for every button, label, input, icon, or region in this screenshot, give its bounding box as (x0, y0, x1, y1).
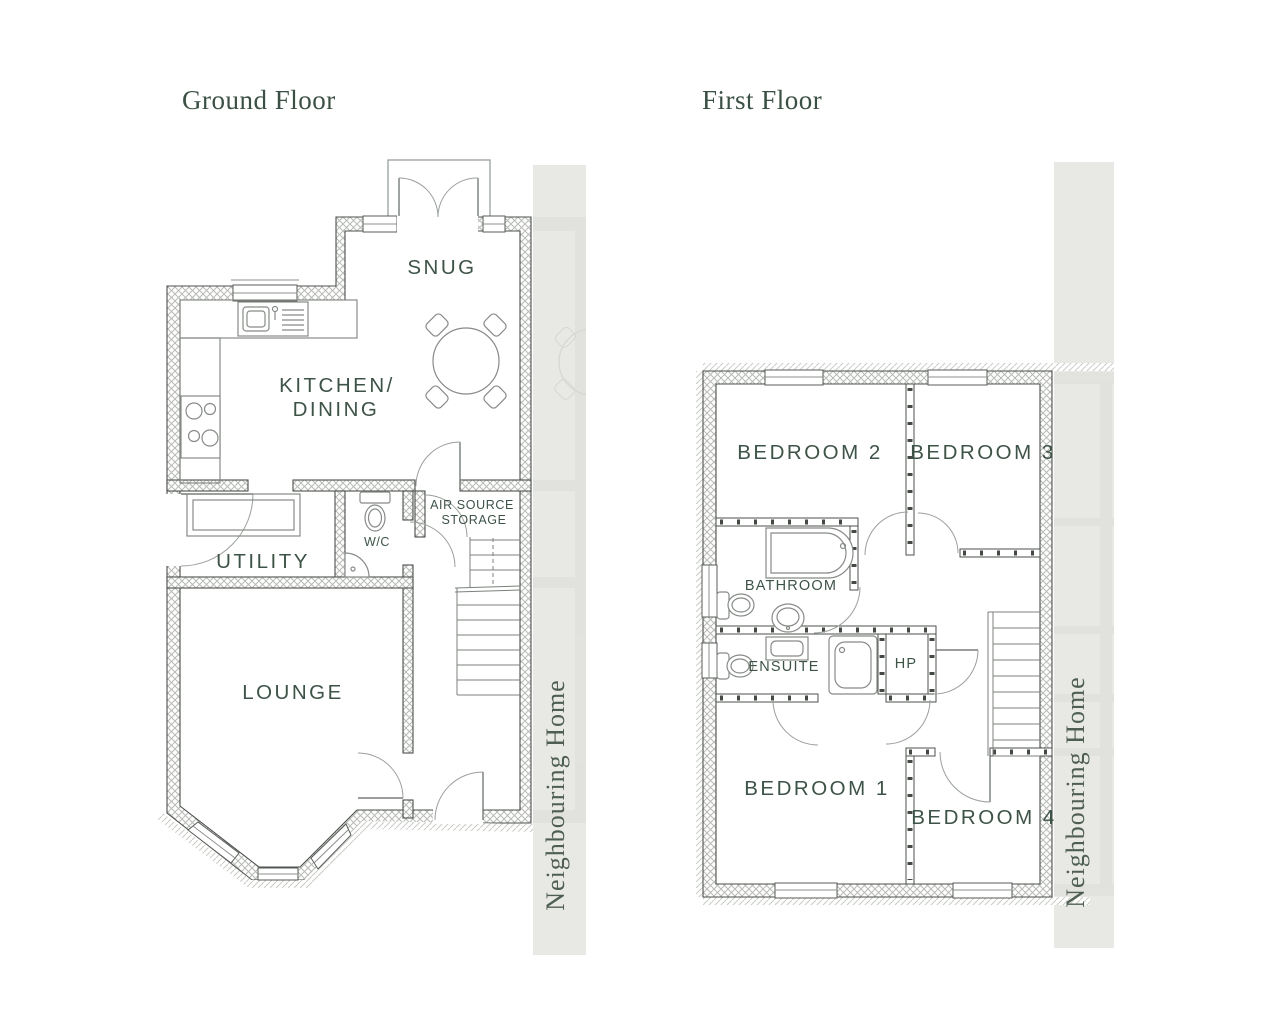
utility-worktop (187, 494, 300, 536)
kitchen-sink (238, 302, 308, 336)
room-label-hp: HP (895, 656, 918, 672)
bathroom-toilet (717, 592, 754, 619)
room-label-lounge: LOUNGE (242, 681, 344, 704)
room-label-kitchen-line2: DINING (293, 398, 380, 421)
room-label-wc: W/C (364, 535, 390, 549)
room-label-bedroom3: BEDROOM 3 (910, 441, 1056, 464)
room-label-snug: SNUG (407, 256, 476, 279)
ground-floor-plan: SNUG KITCHEN/ DINING UTILITY W/C AIR SOU… (160, 160, 625, 955)
wc-basin (345, 553, 369, 577)
room-label-airsource-line2: STORAGE (441, 513, 506, 527)
ground-internal-walls (167, 480, 531, 818)
room-label-bedroom1: BEDROOM 1 (744, 777, 890, 800)
wc-toilet (360, 492, 390, 531)
ground-exterior-walls (167, 217, 531, 880)
bathroom-basin (772, 604, 804, 632)
first-floor-title: First Floor (702, 85, 822, 116)
room-label-ensuite: ENSUITE (748, 659, 819, 675)
room-label-bedroom4: BEDROOM 4 (911, 806, 1057, 829)
first-bottom-eaves (703, 897, 1090, 905)
bathroom-bath (766, 528, 853, 578)
kitchen-hob (181, 396, 220, 458)
first-left-eaves (696, 371, 703, 897)
dining-table (424, 312, 507, 409)
room-label-bathroom: BATHROOM (745, 578, 837, 594)
room-label-kitchen-line1: KITCHEN/ (279, 374, 395, 397)
floorplan-page: Ground Floor First Floor (0, 0, 1280, 1024)
first-floor-plan: BEDROOM 2 BEDROOM 3 BATHROOM ENSUITE HP … (696, 162, 1114, 948)
ground-floor-title: Ground Floor (182, 85, 336, 116)
ground-neighbour-label: Neighbouring Home (541, 679, 570, 910)
room-label-utility: UTILITY (216, 550, 310, 573)
first-stairs (988, 612, 1040, 756)
ground-stairs (455, 537, 520, 695)
room-label-bedroom2: BEDROOM 2 (737, 441, 883, 464)
floorplan-canvas: SNUG KITCHEN/ DINING UTILITY W/C AIR SOU… (0, 0, 1280, 1024)
ensuite-vanity (766, 637, 808, 660)
ground-windows (188, 216, 505, 880)
ensuite-shower (829, 636, 877, 694)
room-label-airsource-line1: AIR SOURCE (430, 498, 514, 512)
first-neighbour-label: Neighbouring Home (1061, 676, 1090, 907)
